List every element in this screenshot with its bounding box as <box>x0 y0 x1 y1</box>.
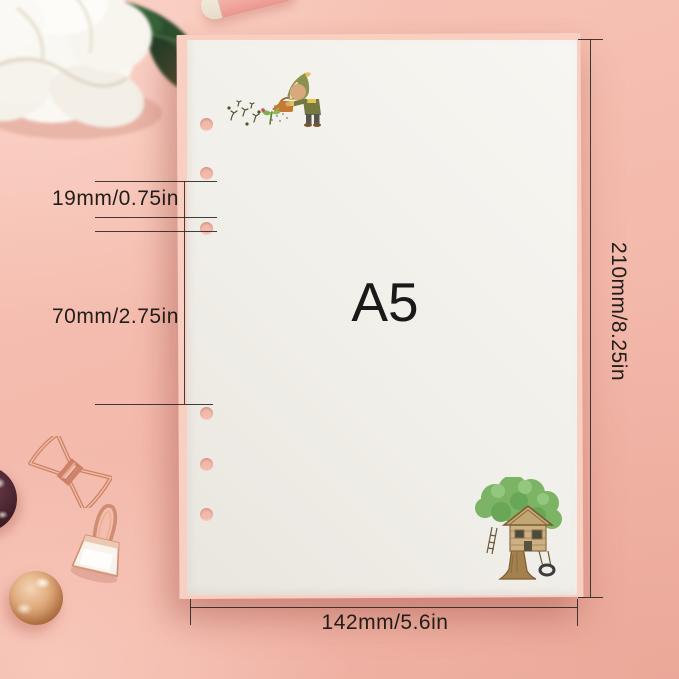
hole-spacing-label: 19mm/0.75in <box>52 187 179 211</box>
binder-hole-1 <box>200 118 213 131</box>
dim-line-gap-bottom <box>95 404 213 406</box>
dim-connector-left <box>184 181 186 404</box>
binder-hole-4 <box>200 407 213 420</box>
hole-group-gap-label: 70mm/2.75in <box>52 305 179 329</box>
product-photo-scene: A5 19mm/0.75in 70mm/2.75in 210mm/8.25in … <box>0 0 679 679</box>
dim-cap-height-bottom <box>578 597 603 599</box>
page-width-label: 142mm/5.6in <box>285 611 485 635</box>
dim-line-gap-top <box>95 231 217 233</box>
child-watering-illustration <box>225 58 337 130</box>
treehouse-illustration <box>473 477 565 582</box>
dim-line-width <box>190 607 577 609</box>
rose-gold-ball <box>9 571 63 625</box>
page-height-label: 210mm/8.25in <box>606 242 630 381</box>
dim-line-hole-top <box>95 181 217 183</box>
paper-size-label: A5 <box>330 274 440 330</box>
dark-sphere <box>0 466 17 532</box>
binder-hole-3 <box>200 222 213 235</box>
dim-cap-height-top <box>578 39 603 41</box>
rose-gold-binder-clip <box>70 496 134 584</box>
binder-hole-6 <box>200 508 213 521</box>
dim-tick-width-right <box>577 599 579 626</box>
dim-line-height <box>590 39 592 597</box>
binder-hole-2 <box>200 167 213 180</box>
dim-line-hole-bottom <box>95 217 217 219</box>
binder-hole-5 <box>200 458 213 471</box>
pink-pen-cylinder <box>198 0 298 22</box>
dim-tick-width-left <box>190 599 192 625</box>
